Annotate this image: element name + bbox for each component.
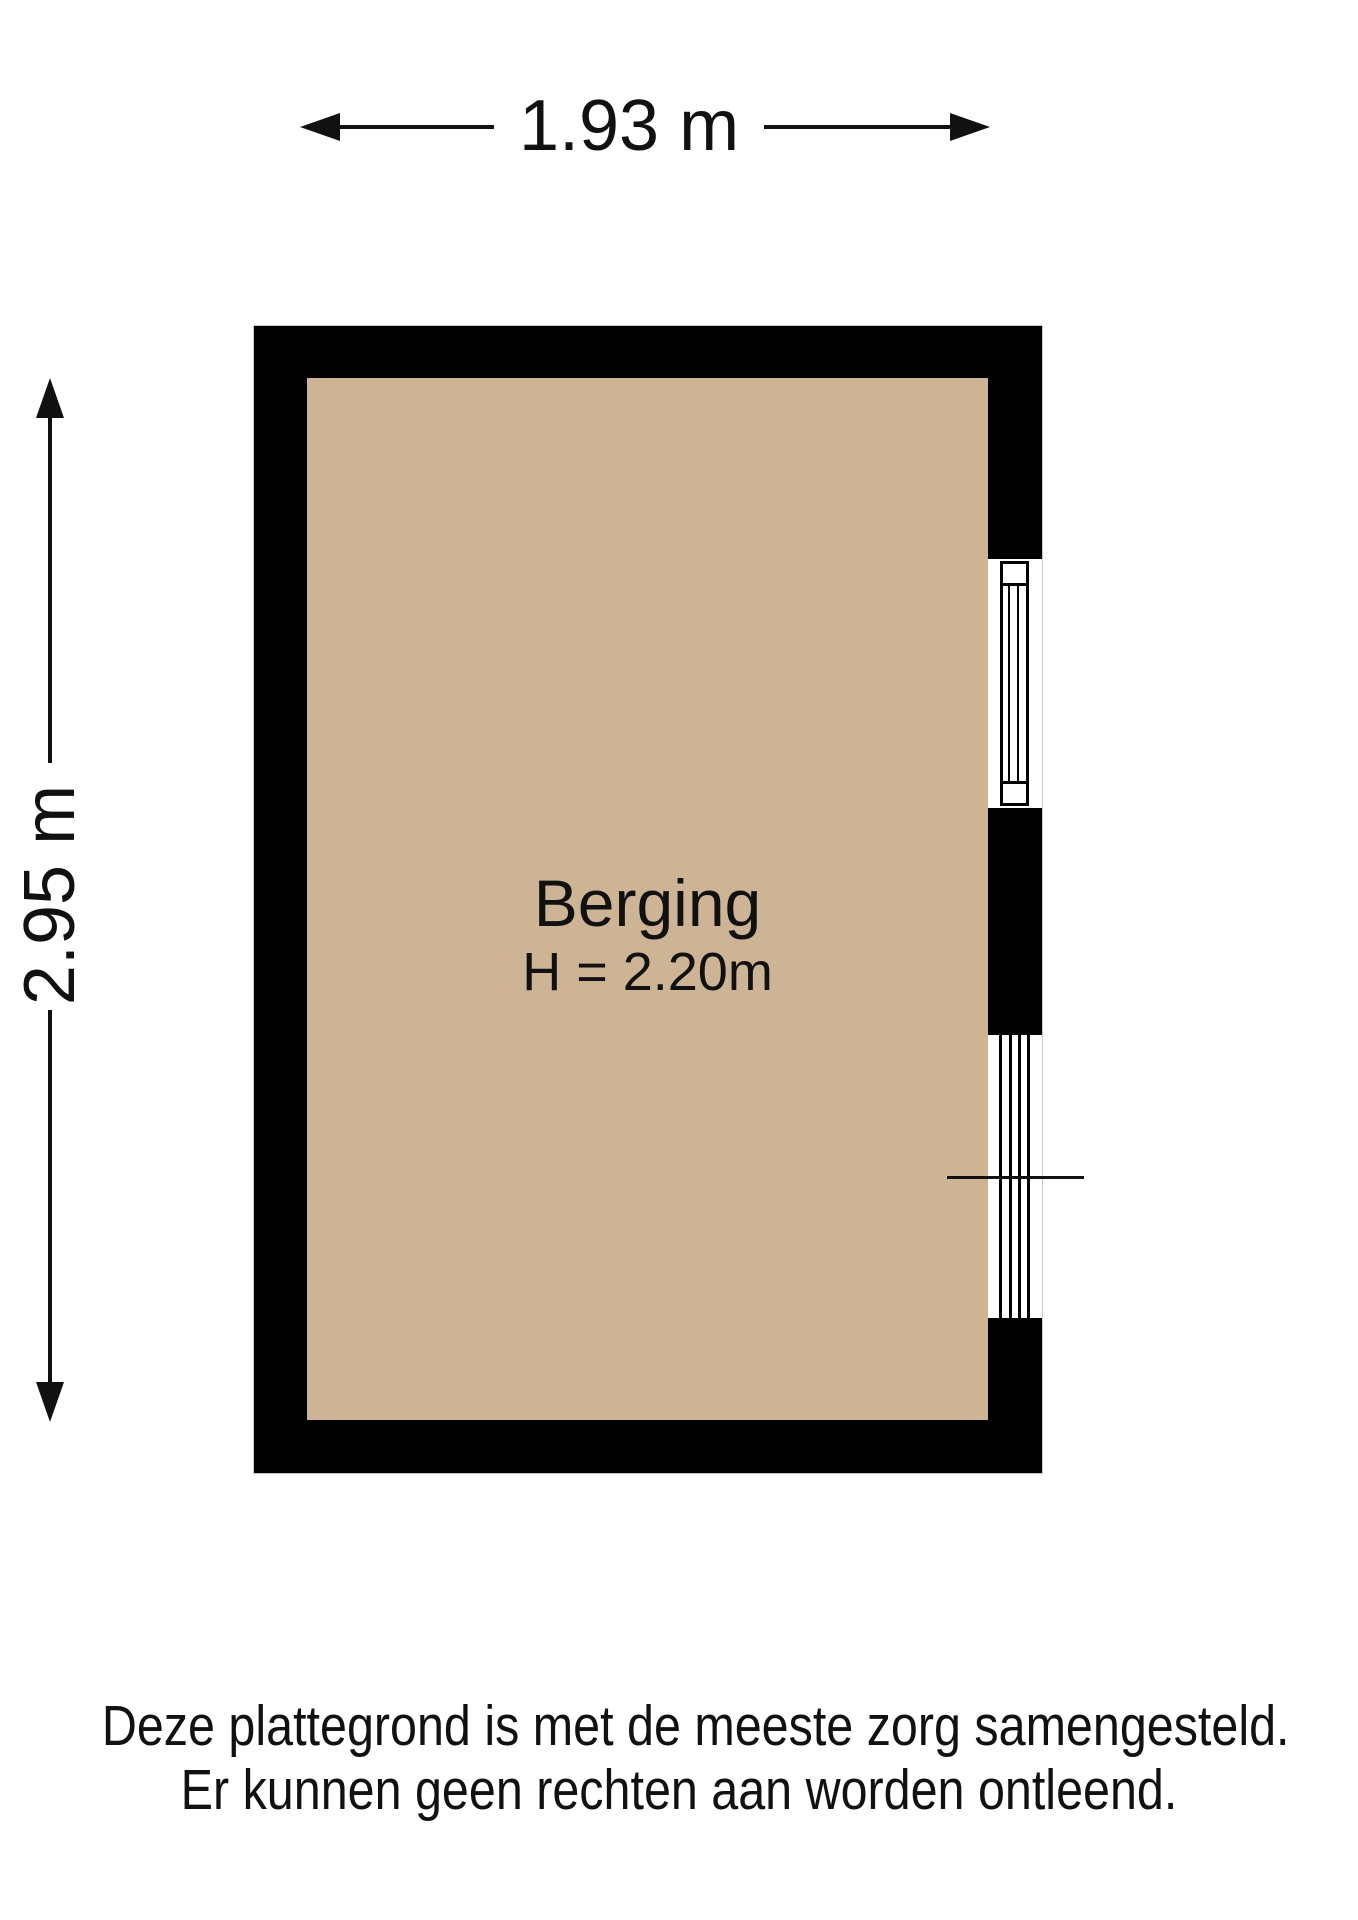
room-label: Berging H = 2.20m bbox=[307, 864, 988, 1002]
dimension-line-right bbox=[764, 125, 950, 129]
disclaimer-line-1: Deze plattegrond is met de meeste zorg s… bbox=[102, 1694, 1256, 1758]
arrow-left-icon bbox=[300, 113, 340, 141]
arrow-down-icon bbox=[36, 1382, 64, 1422]
window-panes bbox=[1003, 586, 1026, 781]
dimension-line-left bbox=[338, 125, 494, 129]
window-upper-opening bbox=[988, 559, 1042, 808]
window-frame-cap-top bbox=[1003, 564, 1026, 586]
ceiling-height-label: H = 2.20m bbox=[307, 942, 988, 1002]
arrow-right-icon bbox=[950, 113, 990, 141]
dimension-line-top bbox=[48, 416, 52, 763]
height-dimension-label: 2.95 m bbox=[9, 785, 91, 1005]
dimension-line-bottom bbox=[48, 1010, 52, 1382]
window-pane-line bbox=[1017, 586, 1019, 781]
width-dimension-label: 1.93 m bbox=[494, 86, 764, 166]
arrow-up-icon bbox=[36, 378, 64, 418]
window-upper-frame bbox=[1000, 561, 1029, 806]
disclaimer-line-2: Er kunnen geen rechten aan worden ontlee… bbox=[102, 1758, 1256, 1822]
threshold-line bbox=[947, 1176, 1084, 1179]
window-frame-cap-bottom bbox=[1003, 781, 1026, 803]
disclaimer: Deze plattegrond is met de meeste zorg s… bbox=[0, 1694, 1358, 1822]
window-pane-line bbox=[1008, 586, 1010, 781]
room-name-label: Berging bbox=[307, 864, 988, 942]
floorplan-canvas: 1.93 m 2.95 m Berging H = bbox=[0, 0, 1358, 1920]
